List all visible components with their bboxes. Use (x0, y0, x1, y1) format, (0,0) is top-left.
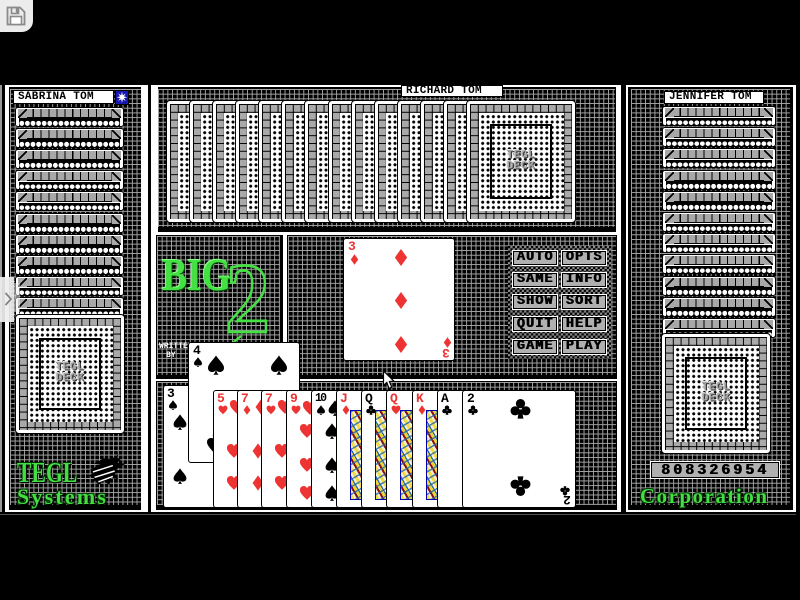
svg-text:2: 2 (225, 242, 269, 355)
